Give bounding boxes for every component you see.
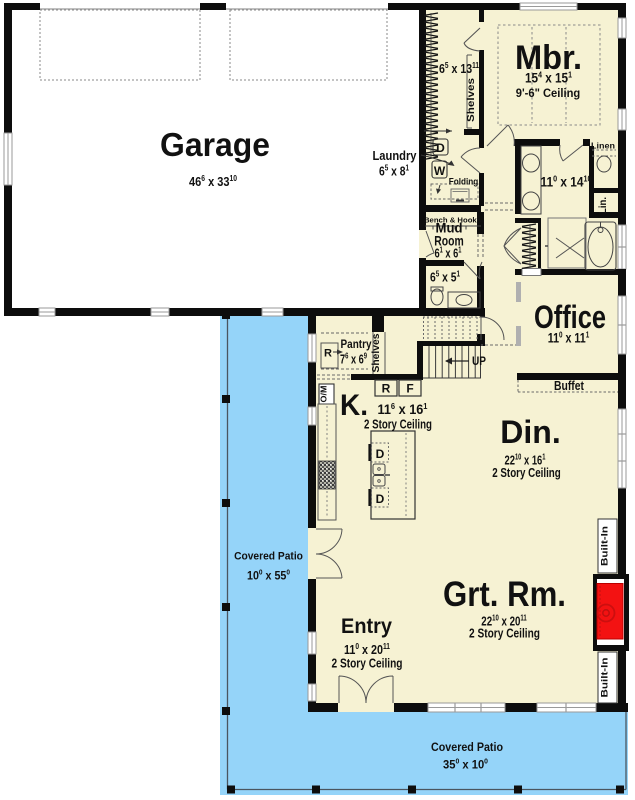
svg-text:350 x 100: 350 x 100: [443, 758, 488, 771]
svg-text:116 x 161: 116 x 161: [378, 402, 429, 417]
svg-text:61 x 61: 61 x 61: [435, 247, 462, 261]
svg-text:Covered Patio: Covered Patio: [234, 550, 303, 563]
svg-text:65 x 51: 65 x 51: [430, 269, 460, 285]
svg-text:O/M: O/M: [319, 386, 329, 403]
svg-text:D: D: [436, 141, 445, 155]
svg-text:Garage: Garage: [160, 127, 270, 164]
svg-text:R: R: [382, 382, 391, 396]
svg-text:F: F: [406, 382, 413, 396]
svg-text:Folding: Folding: [449, 176, 478, 186]
svg-text:65 x 81: 65 x 81: [379, 163, 409, 179]
svg-text:W: W: [434, 164, 446, 178]
svg-text:Linen: Linen: [591, 141, 615, 150]
svg-text:D: D: [376, 492, 385, 506]
svg-text:R: R: [324, 348, 332, 360]
svg-text:76 x 69: 76 x 69: [340, 353, 367, 367]
svg-text:2 Story Ceiling: 2 Story Ceiling: [332, 658, 403, 671]
svg-text:2210 x 161: 2210 x 161: [505, 454, 546, 468]
svg-text:Entry: Entry: [341, 615, 393, 639]
svg-text:Built-In: Built-In: [599, 526, 610, 566]
svg-text:2 Story Ceiling: 2 Story Ceiling: [469, 628, 540, 641]
svg-text:Din.: Din.: [500, 414, 560, 450]
svg-text:9'-6" Ceiling: 9'-6" Ceiling: [516, 87, 580, 101]
svg-text:K.: K.: [340, 389, 368, 422]
svg-text:UP: UP: [472, 355, 487, 368]
svg-text:2 Story Ceiling: 2 Story Ceiling: [492, 467, 561, 480]
svg-text:110 x 111: 110 x 111: [548, 330, 589, 346]
svg-text:Shelves: Shelves: [371, 333, 382, 372]
svg-text:Buffet: Buffet: [554, 379, 584, 393]
svg-text:Lin.: Lin.: [598, 197, 609, 214]
svg-text:Grt. Rm.: Grt. Rm.: [443, 575, 566, 614]
svg-text:D: D: [376, 447, 385, 461]
svg-text:154 x 151: 154 x 151: [525, 70, 572, 86]
svg-text:Pantry: Pantry: [341, 338, 373, 351]
svg-text:2 Story Ceiling: 2 Story Ceiling: [364, 418, 432, 431]
svg-text:Laundry: Laundry: [372, 148, 416, 163]
svg-text:Built-In: Built-In: [599, 657, 610, 697]
svg-text:100 x 550: 100 x 550: [247, 569, 290, 582]
svg-text:Shelves: Shelves: [465, 78, 476, 122]
svg-text:Covered Patio: Covered Patio: [431, 742, 503, 754]
